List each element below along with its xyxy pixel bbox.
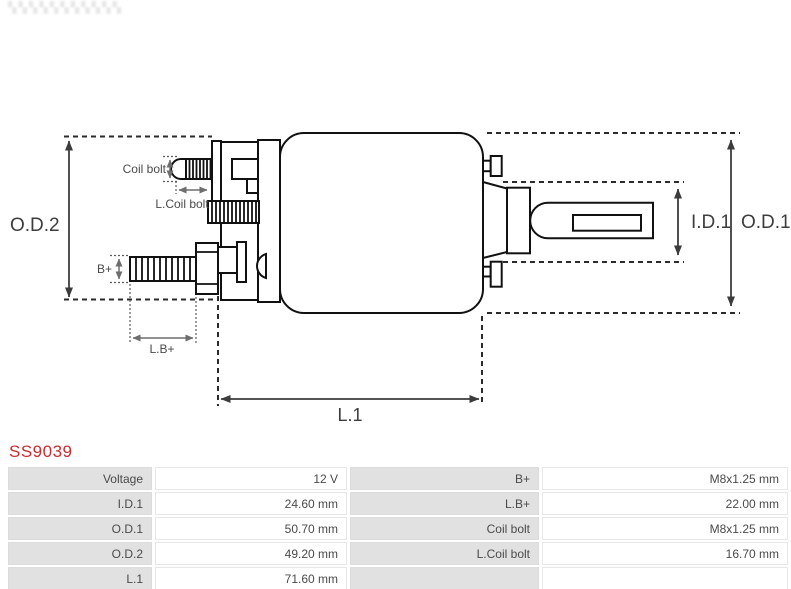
part-number: SS9039 [9,442,73,462]
shaft-slot [573,215,641,231]
dim-label-l1: L.1 [337,405,362,425]
dim-label-lcoil-bolt: L.Coil bolt [155,197,209,211]
coil-bolt-head [171,159,186,179]
spec-value-voltage: 12 V [155,467,347,490]
bplus-washer [237,242,246,282]
bplus-block [218,247,238,273]
flange-plate-inner [258,140,280,302]
nose-cone [483,182,507,258]
spec-label-empty [350,567,539,589]
spec-label-id1: I.D.1 [8,492,152,515]
small-dimension-arrows [119,160,207,338]
terminal-top-head [491,156,502,176]
spec-value-lcoilbolt: 16.70 mm [542,542,788,565]
dim-label-id1: I.D.1 [691,212,731,233]
technical-diagram: O.D.2 O.D.1 I.D.1 L.1 Coil bolt L.Coil b… [0,0,791,440]
spec-value-bplus: M8x1.25 mm [542,467,788,490]
spec-label-lcoilbolt: L.Coil bolt [350,542,539,565]
spec-value-id1: 24.60 mm [155,492,347,515]
flange-step-notch [232,159,258,179]
spec-label-od2: O.D.2 [8,542,152,565]
solenoid-body [280,133,483,313]
shaft-collar [507,188,530,254]
dim-label-coil-bolt: Coil bolt [123,162,167,176]
helper-lines [110,157,196,345]
spec-table: Voltage 12 V B+ M8x1.25 mm I.D.1 24.60 m… [8,467,788,589]
bplus-hex-nut [196,243,218,294]
dim-label-od1: O.D.1 [741,212,791,233]
dim-label-od2: O.D.2 [10,215,60,236]
terminal-bottom-head [491,262,502,287]
spec-value-od1: 50.70 mm [155,517,347,540]
spec-value-coilbolt: M8x1.25 mm [542,517,788,540]
spec-value-lbplus: 22.00 mm [542,492,788,515]
dim-label-bplus: B+ [97,262,112,276]
spec-label-voltage: Voltage [8,467,152,490]
bplus-threads [130,257,196,281]
spec-value-empty [542,567,788,589]
terminal-bottom-stem [483,267,491,277]
spec-label-coilbolt: Coil bolt [350,517,539,540]
spec-label-lbplus: L.B+ [350,492,539,515]
dim-label-lbplus: L.B+ [149,342,174,356]
spec-label-od1: O.D.1 [8,517,152,540]
spec-label-l1: L.1 [8,567,152,589]
spec-value-od2: 49.20 mm [155,542,347,565]
solenoid-part [130,133,653,313]
terminal-top-stem [483,161,491,172]
flange-step-notch2 [247,179,258,193]
spec-label-bplus: B+ [350,467,539,490]
spec-value-l1: 71.60 mm [155,567,347,589]
flange-strip [212,141,221,201]
page: ▚▚▚▚▚▚▚▚▚▚▚ [0,0,791,589]
